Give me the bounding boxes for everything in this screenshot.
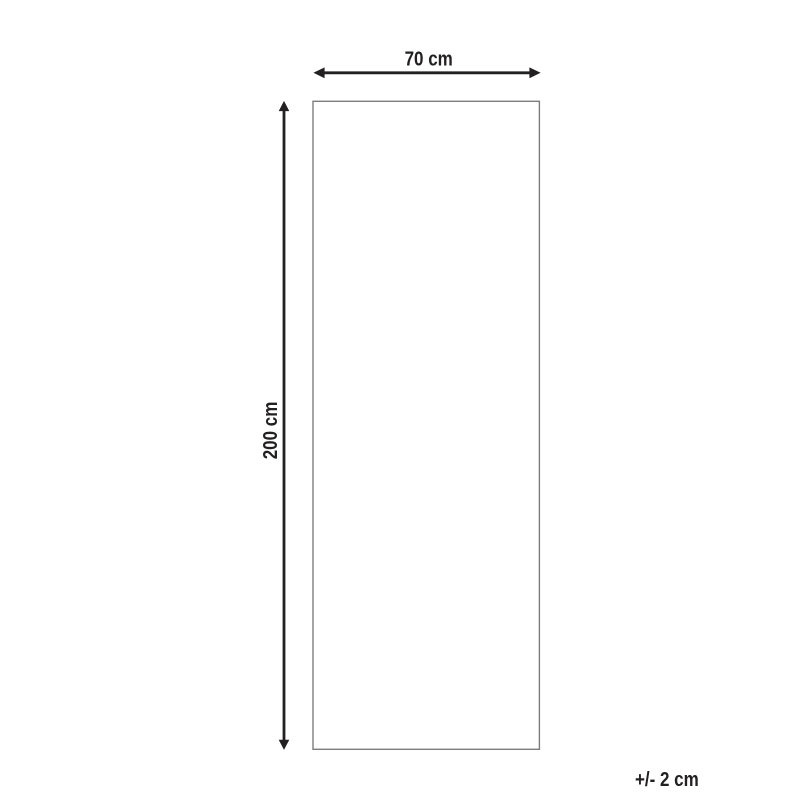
svg-text:70 cm: 70 cm	[405, 47, 453, 70]
svg-text:200 cm: 200 cm	[258, 402, 281, 460]
svg-text:+/- 2 cm: +/- 2 cm	[635, 768, 699, 791]
